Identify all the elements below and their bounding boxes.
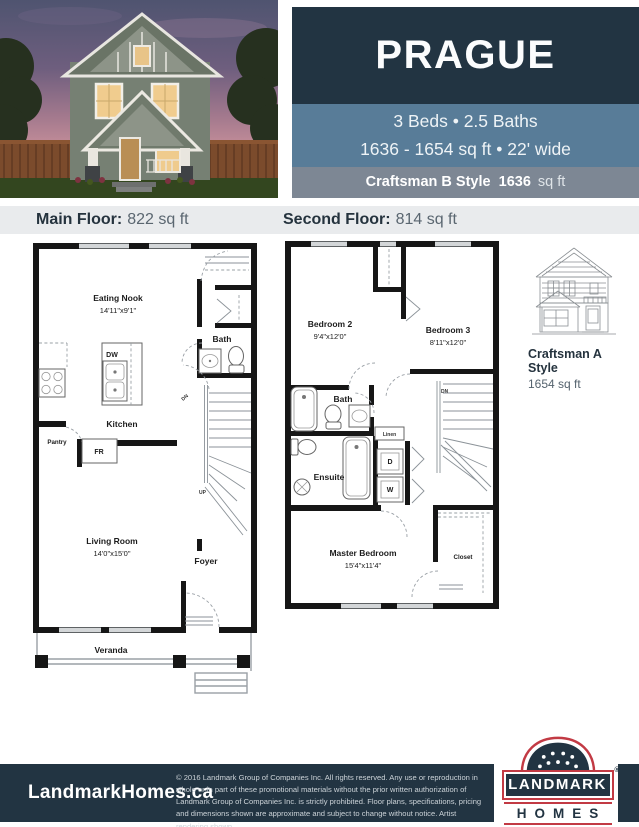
header: PRAGUE 3 Beds • 2.5 Baths 1636 - 1654 sq… bbox=[292, 7, 639, 198]
bedroom3-label: Bedroom 3 bbox=[426, 325, 471, 335]
floor-label-band: Main Floor:822 sq ft Second Floor:814 sq… bbox=[0, 206, 639, 234]
bath2-label: Bath bbox=[334, 394, 353, 404]
footer-band: LandmarkHomes.ca © 2016 Landmark Group o… bbox=[0, 764, 494, 822]
eating-nook-dims: 14'11"x9'1" bbox=[100, 306, 137, 315]
kitchen-label: Kitchen bbox=[106, 419, 137, 429]
specs-beds-baths: 3 Beds • 2.5 Baths bbox=[292, 108, 639, 135]
master-bedroom-label: Master Bedroom bbox=[329, 548, 397, 558]
brochure-page: PRAGUE 3 Beds • 2.5 Baths 1636 - 1654 sq… bbox=[0, 0, 639, 827]
house-photo bbox=[0, 0, 278, 198]
style-banner: Craftsman B Style 1636 sq ft bbox=[292, 167, 639, 198]
master-bedroom-dims: 15'4"x11'4" bbox=[345, 561, 382, 570]
bedroom2-dims: 9'4"x12'0" bbox=[314, 332, 347, 341]
main-floor-plan: Bath DN UP Eating Nook 14'11"x9'1" DW Ki… bbox=[33, 243, 257, 698]
front-steps bbox=[195, 673, 247, 693]
stairs-dn2-label: DN bbox=[441, 389, 449, 395]
second-floor-plan: Bedroom 2 9'4"x12'0" Bedroom 3 8'11"x12'… bbox=[285, 241, 499, 609]
bedroom3-dims: 8'11"x12'0" bbox=[430, 338, 467, 347]
veranda-posts bbox=[35, 655, 250, 668]
closet-label: Closet bbox=[454, 554, 473, 561]
homes-wordmark: HOMES bbox=[504, 802, 612, 825]
second-floor-label: Second Floor:814 sq ft bbox=[283, 206, 457, 234]
pantry-label: Pantry bbox=[47, 439, 67, 446]
veranda-railing bbox=[37, 633, 251, 671]
eating-nook-label: Eating Nook bbox=[93, 293, 143, 303]
legal-text: © 2016 Landmark Group of Companies Inc. … bbox=[176, 772, 490, 827]
alt-style: Craftsman A Style 1654 sq ft bbox=[528, 246, 628, 391]
stairs-dn-label: DN bbox=[180, 393, 190, 402]
linen-label: Linen bbox=[383, 432, 396, 438]
footer-band-right bbox=[618, 764, 639, 822]
landmark-logo: LANDMARK ® HOMES it’s what’s inside bbox=[497, 735, 618, 827]
registered-mark: ® bbox=[614, 767, 619, 774]
style-sqft-unit: sq ft bbox=[538, 174, 565, 190]
plan-name-banner: PRAGUE bbox=[292, 7, 639, 104]
ensuite-label: Ensuite bbox=[314, 472, 345, 482]
dishwasher-label: DW bbox=[106, 352, 118, 359]
landmark-wordmark: LANDMARK ® bbox=[504, 772, 612, 798]
stairs-up-label: UP bbox=[199, 490, 207, 496]
bath-label: Bath bbox=[213, 334, 232, 344]
landmark-logo-dome bbox=[516, 735, 600, 773]
dryer-label: D bbox=[387, 459, 392, 466]
specs-banner: 3 Beds • 2.5 Baths 1636 - 1654 sq ft • 2… bbox=[292, 104, 639, 167]
washer-label: W bbox=[387, 487, 394, 494]
bedroom2-label: Bedroom 2 bbox=[308, 319, 353, 329]
style-sqft: 1636 bbox=[499, 174, 531, 190]
specs-size-width: 1636 - 1654 sq ft • 22' wide bbox=[292, 136, 639, 163]
style-name: Craftsman B Style bbox=[366, 174, 491, 190]
fridge-label: FR bbox=[94, 449, 103, 456]
craftsman-a-drawing bbox=[528, 246, 620, 336]
alt-style-name: Craftsman A Style bbox=[528, 347, 628, 376]
foyer-label: Foyer bbox=[194, 556, 218, 566]
living-room-label: Living Room bbox=[86, 536, 138, 546]
alt-style-sqft: 1654 sq ft bbox=[528, 377, 628, 391]
plan-name: PRAGUE bbox=[375, 33, 555, 78]
main-floor-label: Main Floor:822 sq ft bbox=[36, 206, 189, 234]
living-room-dims: 14'0"x15'0" bbox=[94, 549, 131, 558]
veranda-label: Veranda bbox=[94, 645, 127, 655]
